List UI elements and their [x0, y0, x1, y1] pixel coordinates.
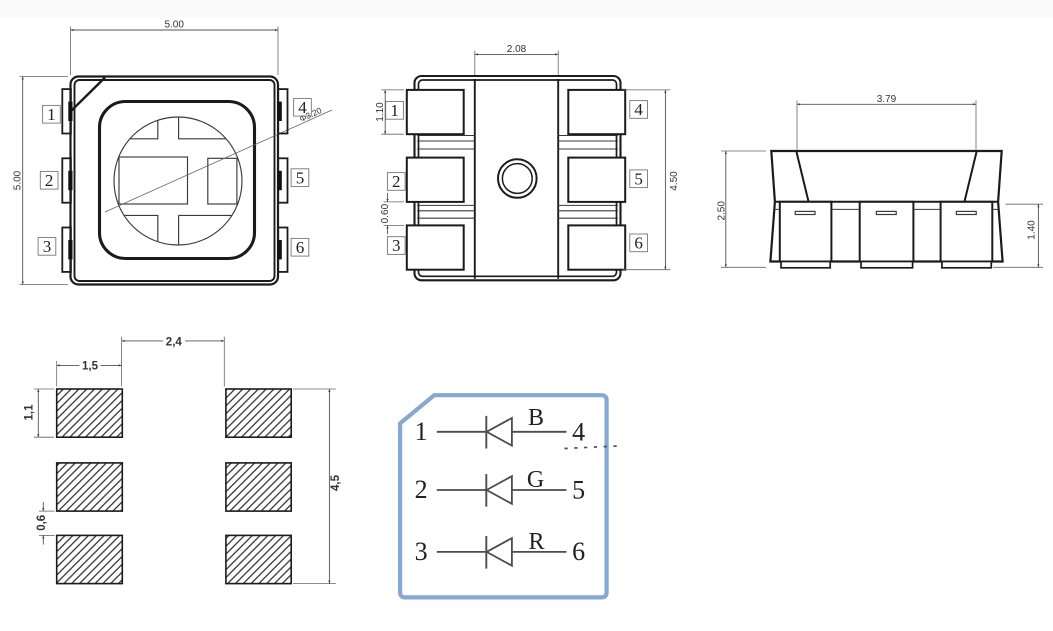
- svg-text:6: 6: [296, 238, 305, 257]
- svg-text:1: 1: [47, 105, 56, 124]
- svg-text:3.79: 3.79: [877, 94, 897, 105]
- svg-text:1.10: 1.10: [375, 102, 386, 122]
- svg-text:4.50: 4.50: [669, 171, 680, 191]
- svg-text:1.40: 1.40: [1027, 220, 1038, 240]
- svg-text:4,5: 4,5: [330, 474, 342, 491]
- svg-text:G: G: [527, 467, 544, 493]
- svg-text:1: 1: [390, 101, 399, 120]
- svg-text:6: 6: [572, 537, 585, 566]
- svg-text:2.50: 2.50: [716, 201, 727, 221]
- svg-text:4: 4: [634, 100, 643, 119]
- svg-text:4: 4: [298, 98, 307, 117]
- svg-text:3: 3: [43, 237, 52, 256]
- svg-text:0,6: 0,6: [36, 515, 48, 531]
- svg-text:R: R: [528, 529, 544, 555]
- svg-text:5.00: 5.00: [12, 170, 23, 190]
- svg-text:6: 6: [634, 234, 643, 253]
- svg-text:3: 3: [392, 236, 401, 255]
- svg-text:2: 2: [392, 172, 401, 191]
- svg-text:B: B: [528, 405, 544, 431]
- svg-text:1,5: 1,5: [82, 361, 99, 373]
- svg-text:2,4: 2,4: [166, 336, 183, 348]
- svg-text:5.00: 5.00: [164, 20, 184, 31]
- svg-text:4: 4: [572, 417, 585, 446]
- svg-text:5: 5: [572, 476, 585, 505]
- svg-text:0.60: 0.60: [380, 203, 391, 223]
- svg-text:2.08: 2.08: [507, 44, 527, 55]
- svg-text:3: 3: [415, 537, 428, 566]
- svg-text:2: 2: [45, 171, 54, 190]
- svg-text:5: 5: [296, 168, 305, 187]
- svg-text:1: 1: [415, 417, 428, 446]
- svg-text:2: 2: [415, 475, 428, 504]
- svg-text:5: 5: [634, 169, 643, 188]
- svg-text:1,1: 1,1: [24, 404, 36, 421]
